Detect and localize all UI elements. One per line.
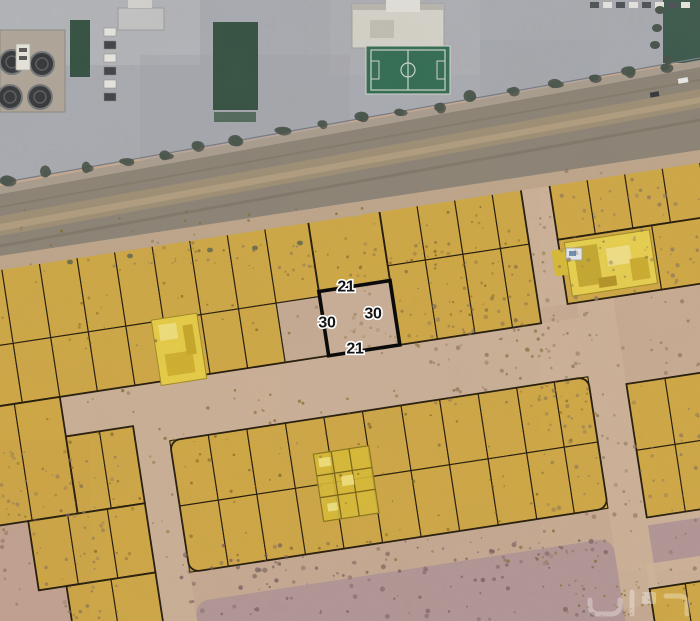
- plot-dimension-label-bottom: 21: [346, 341, 364, 358]
- plot-dimension-label-left: 30: [318, 315, 336, 332]
- plot-dimension-label-right: 30: [364, 306, 382, 323]
- plot-dimension-label-top: 21: [337, 279, 355, 296]
- satellite-map-image[interactable]: 21303021: [0, 0, 700, 621]
